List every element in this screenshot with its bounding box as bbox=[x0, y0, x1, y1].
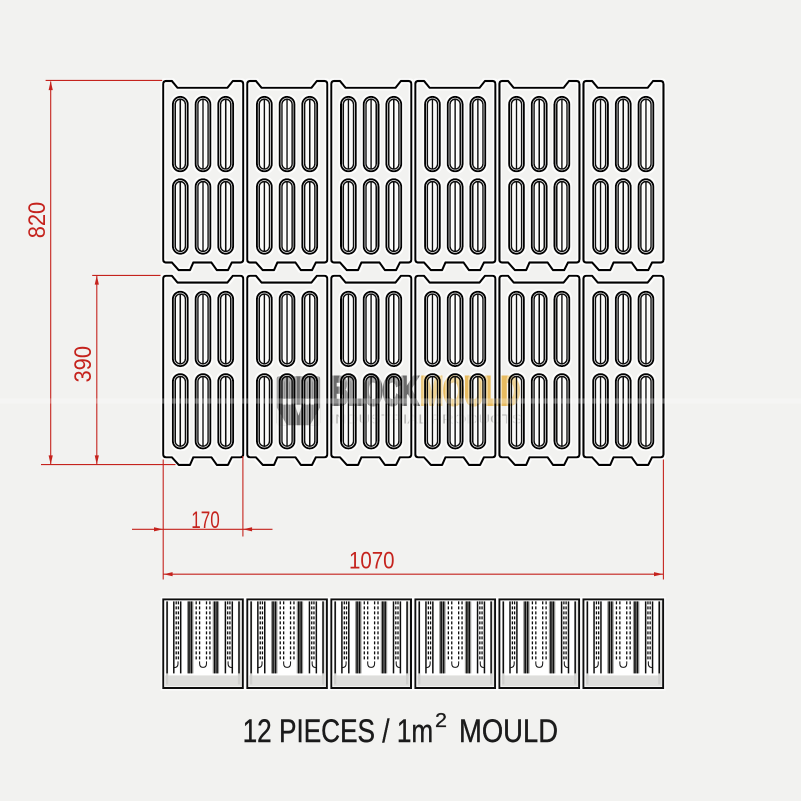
svg-text:MOULD: MOULD bbox=[421, 370, 521, 414]
svg-text:1070: 1070 bbox=[349, 548, 395, 575]
svg-text:390: 390 bbox=[70, 346, 97, 383]
svg-text:MOULD: MOULD bbox=[459, 713, 558, 749]
svg-text:170: 170 bbox=[191, 507, 220, 534]
svg-text:12 PIECES / 1m: 12 PIECES / 1m bbox=[243, 713, 434, 749]
svg-text:BLOCK: BLOCK bbox=[331, 370, 419, 414]
svg-text:INDUSTRIAL PRODUCTS: INDUSTRIAL PRODUCTS bbox=[331, 413, 523, 427]
svg-text:820: 820 bbox=[24, 202, 51, 239]
svg-text:2: 2 bbox=[435, 710, 447, 732]
